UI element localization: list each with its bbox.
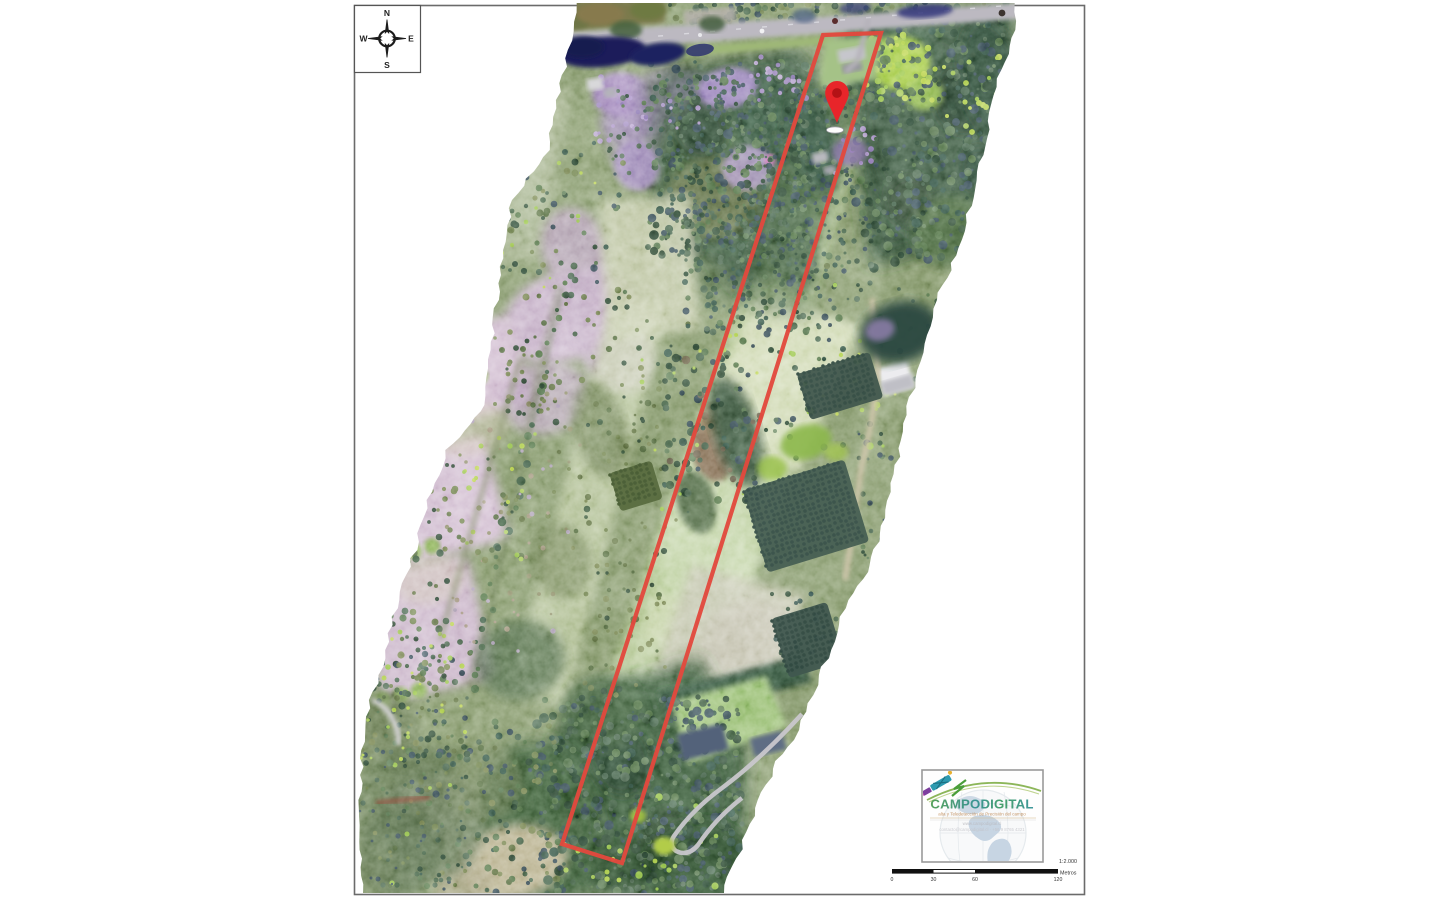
svg-text:N: N: [384, 8, 390, 18]
svg-text:www.campodigital.cl: www.campodigital.cl: [963, 821, 1002, 826]
svg-text:E: E: [408, 34, 414, 44]
svg-text:W: W: [359, 34, 368, 44]
svg-text:60: 60: [972, 877, 978, 883]
svg-text:S: S: [384, 60, 390, 70]
svg-text:0: 0: [891, 877, 894, 883]
svg-text:30: 30: [931, 877, 937, 883]
svg-text:Metros: Metros: [1060, 871, 1077, 877]
svg-text:contacto@campodigital.cl · +56: contacto@campodigital.cl · +56 9 8765 43…: [939, 827, 1025, 832]
svg-text:alta y Teledetección de Precis: alta y Teledetección de Precisión del ca…: [938, 812, 1026, 817]
svg-text:CAMPODIGITAL: CAMPODIGITAL: [930, 797, 1033, 812]
svg-text:120: 120: [1054, 877, 1063, 883]
svg-text:1:2.000: 1:2.000: [1059, 859, 1077, 865]
